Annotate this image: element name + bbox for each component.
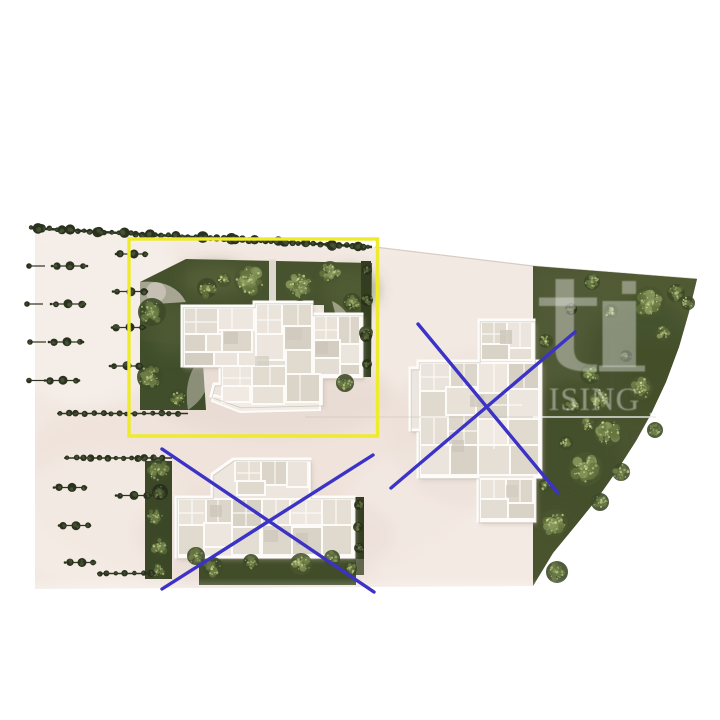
svg-text:ISING: ISING	[549, 382, 641, 418]
